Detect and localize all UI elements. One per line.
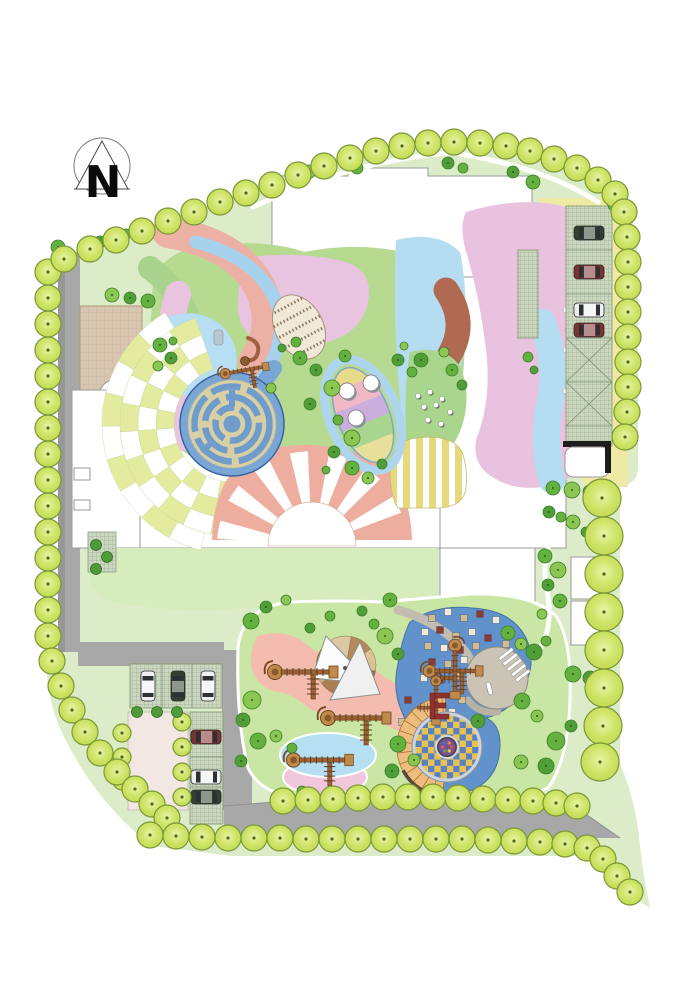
pavilion [563, 441, 611, 477]
tree-center-dot [70, 708, 73, 711]
shrub-dot [397, 359, 399, 361]
checker-square [422, 753, 428, 759]
car-rear-window [203, 693, 214, 697]
car-roof [172, 681, 184, 692]
tree-center-dot [600, 496, 603, 499]
checker-square [460, 766, 466, 772]
car-windshield [579, 305, 584, 316]
tree-center-dot [575, 804, 578, 807]
checker-square [466, 753, 472, 759]
pavilion-wall-top [563, 441, 611, 447]
tree-center-dot [552, 157, 555, 160]
shrub-tree [400, 342, 408, 350]
shrub-dot [240, 760, 242, 762]
tree-center-dot [192, 210, 195, 213]
shrub-dot [570, 725, 572, 727]
play-square [461, 657, 468, 664]
checker-square [428, 741, 434, 747]
shrub-tree [537, 609, 547, 619]
small-tree [132, 707, 143, 718]
garden-bench [214, 330, 223, 345]
checker-square [434, 728, 440, 734]
shrub-dot [545, 765, 547, 767]
checker-square [447, 766, 453, 772]
ladder-rail [299, 758, 348, 762]
checker-square [422, 747, 428, 753]
checker-square [416, 741, 422, 747]
checker-square [460, 741, 466, 747]
tree-center-dot [46, 608, 49, 611]
checker-square [422, 741, 428, 747]
shrub-tree [407, 367, 417, 377]
tree-center-dot [613, 192, 616, 195]
checker-square [441, 760, 447, 766]
shrub-tree [377, 459, 387, 469]
shrub-dot [275, 735, 277, 737]
shrub-dot [397, 653, 399, 655]
shrub-dot [250, 620, 252, 622]
shrub-dot [557, 569, 559, 571]
site-plan-page: N [0, 0, 699, 989]
checker-square [460, 734, 466, 740]
tree-center-dot [602, 686, 605, 689]
shrub-dot [351, 437, 353, 439]
tree-center-dot [601, 857, 604, 860]
shrub-dot [420, 359, 422, 361]
slide-platform [432, 719, 440, 725]
play-square [503, 641, 510, 648]
checker-cell [120, 403, 140, 432]
tree-center-dot [46, 478, 49, 481]
target-dot [443, 741, 446, 744]
shrub-dot [315, 369, 317, 371]
shrub-dot [552, 487, 554, 489]
tree-center-dot [598, 760, 601, 763]
car-windshield [143, 676, 154, 681]
target-dot [448, 749, 451, 752]
target-dot [448, 741, 451, 744]
shrub-dot [447, 162, 449, 164]
tree-center-dot [452, 140, 455, 143]
ladder-rail [453, 651, 457, 695]
checker-square [466, 734, 472, 740]
car [574, 226, 604, 240]
tree-center-dot [120, 731, 123, 734]
car-roof [584, 324, 595, 336]
tree-center-dot [506, 798, 509, 801]
tree-center-dot [115, 770, 118, 773]
maze-center [224, 416, 241, 433]
shrub-tree [266, 383, 276, 393]
pale-blue-east-band [542, 322, 553, 480]
snake-head [241, 357, 250, 366]
tree-center-dot [626, 260, 629, 263]
tree-center-dot [623, 435, 626, 438]
tree-center-dot [322, 164, 325, 167]
tree-center-dot [531, 799, 534, 802]
shrub-dot [547, 584, 549, 586]
shrub-tree [369, 619, 379, 629]
tree-center-dot [244, 191, 247, 194]
tree-center-dot [59, 684, 62, 687]
slide-platform [382, 712, 391, 724]
checker-square [447, 722, 453, 728]
shrub-dot [559, 600, 561, 602]
car [574, 303, 604, 317]
pavilion-canopy [565, 447, 609, 477]
tree-center-dot [602, 534, 605, 537]
tree-center-dot [88, 247, 91, 250]
shrub-dot [351, 467, 353, 469]
tree-center-dot [575, 166, 578, 169]
tree-center-dot [625, 235, 628, 238]
shrub-dot [333, 451, 335, 453]
play-square [422, 629, 429, 636]
checker-cell [102, 393, 123, 427]
tree-center-dot [628, 890, 631, 893]
tree-center-dot [46, 270, 49, 273]
shrub-dot [265, 606, 267, 608]
tree-center-dot [563, 842, 566, 845]
shrub-dot [257, 740, 259, 742]
shrub-tree [556, 512, 566, 522]
shrub-dot [555, 740, 557, 742]
shrub-dot [331, 387, 333, 389]
tree-center-dot [46, 452, 49, 455]
play-square [425, 643, 432, 650]
shrub-tree [322, 466, 330, 474]
checker-square [441, 728, 447, 734]
play-square [473, 643, 480, 650]
car [574, 323, 604, 337]
shrub-dot [451, 369, 453, 371]
stepping-stone [425, 417, 430, 422]
tree-center-dot [626, 285, 629, 288]
car-roof [201, 791, 212, 803]
shrub-dot [147, 300, 149, 302]
tree-center-dot [406, 795, 409, 798]
shrub-dot [520, 643, 522, 645]
tree-center-dot [478, 141, 481, 144]
tree-center-dot [46, 530, 49, 533]
tree-center-dot [278, 836, 281, 839]
tree-center-dot [348, 156, 351, 159]
shrub-dot [111, 294, 113, 296]
tree-center-dot [512, 839, 515, 842]
shrub-dot [536, 715, 538, 717]
checker-square [428, 766, 434, 772]
tree-center-dot [166, 219, 169, 222]
checker-square [434, 766, 440, 772]
tree-center-dot [356, 837, 359, 840]
stepping-stone [438, 421, 443, 426]
small-tree [91, 540, 102, 551]
small-tree [172, 707, 183, 718]
tree-center-dot [602, 572, 605, 575]
tree-center-dot [602, 648, 605, 651]
tree-center-dot [381, 795, 384, 798]
small-tree [152, 707, 163, 718]
platform-hub [427, 668, 433, 674]
tree-center-dot [382, 837, 385, 840]
play-square [441, 645, 448, 652]
white-seat [348, 410, 364, 426]
car-windshield [196, 732, 201, 743]
entry-steps-2 [74, 500, 90, 510]
checker-square [466, 747, 472, 753]
car-roof [584, 266, 595, 278]
shrub-tree [281, 595, 291, 605]
shrub-tree [523, 352, 533, 362]
checker-square [441, 766, 447, 772]
tree-center-dot [596, 178, 599, 181]
tree-center-dot [180, 745, 183, 748]
tree-center-dot [180, 720, 183, 723]
checker-square [447, 772, 453, 778]
checker-square [472, 747, 478, 753]
car-roof [201, 731, 212, 743]
checker-square [466, 741, 472, 747]
tree-center-dot [114, 238, 117, 241]
shrub-dot [391, 770, 393, 772]
platform-hub [434, 679, 439, 684]
tree-center-dot [133, 787, 136, 790]
platform-hub [290, 757, 297, 764]
shrub-tree [357, 606, 367, 616]
tree-center-dot [46, 400, 49, 403]
checker-square [472, 741, 478, 747]
tree-center-dot [140, 229, 143, 232]
car-roof [584, 227, 595, 239]
tree-center-dot [174, 834, 177, 837]
tree-center-dot [554, 801, 557, 804]
tree-center-dot [180, 770, 183, 773]
shrub-tree [541, 636, 551, 646]
checker-square [428, 734, 434, 740]
slide-platform [475, 666, 483, 676]
platform-hub [452, 643, 458, 649]
tree-center-dot [165, 816, 168, 819]
play-square [461, 615, 468, 622]
play-square [477, 611, 484, 618]
tree-center-dot [46, 374, 49, 377]
car-windshield [196, 772, 201, 783]
shrub-tree [278, 344, 286, 352]
entry-steps-1 [74, 468, 90, 480]
stepping-stone [439, 396, 444, 401]
checker-square [460, 753, 466, 759]
pavilion-wall-side [605, 447, 611, 473]
tree-center-dot [252, 836, 255, 839]
tree-center-dot [46, 322, 49, 325]
checker-square [428, 753, 434, 759]
car-windshield [579, 267, 584, 278]
car-rear-window [596, 305, 600, 316]
shrub-dot [521, 700, 523, 702]
checker-square [422, 760, 428, 766]
car-windshield [579, 228, 584, 239]
shrub-dot [571, 489, 573, 491]
car-windshield [173, 676, 184, 681]
tree-center-dot [226, 836, 229, 839]
shrub-dot [413, 759, 415, 761]
shrub-dot [572, 521, 574, 523]
car [191, 770, 221, 784]
car-windshield [196, 792, 201, 803]
tree-center-dot [180, 795, 183, 798]
car [201, 671, 215, 701]
tree-center-dot [626, 335, 629, 338]
checker-square [447, 760, 453, 766]
tree-center-dot [481, 797, 484, 800]
small-tree [91, 564, 102, 575]
trellis-strip [518, 250, 538, 338]
tree-center-dot [330, 837, 333, 840]
tree-center-dot [374, 149, 377, 152]
platform-hub [272, 669, 279, 676]
tree-center-dot [62, 257, 65, 260]
play-square [429, 615, 436, 622]
shrub-tree [333, 415, 343, 425]
checker-square [460, 722, 466, 728]
ladder-rail [281, 670, 333, 674]
car-rear-window [596, 267, 600, 278]
car-rear-window [143, 693, 154, 697]
slide-platform [329, 666, 338, 678]
slide-platform [345, 754, 354, 765]
shrub-tree [153, 361, 163, 371]
tree-center-dot [46, 634, 49, 637]
shrub-tree [291, 337, 301, 347]
car-roof [142, 681, 154, 692]
shrub-dot [548, 511, 550, 513]
car-rear-window [596, 228, 600, 239]
car-windshield [579, 325, 584, 336]
tree-center-dot [304, 837, 307, 840]
car-roof [584, 304, 595, 316]
stepping-stone [433, 402, 438, 407]
shrub-dot [299, 357, 301, 359]
shrub-dot [477, 720, 479, 722]
tree-center-dot [486, 838, 489, 841]
car [141, 671, 155, 701]
tree-center-dot [46, 296, 49, 299]
checker-square [453, 722, 459, 728]
parking-access-road [78, 642, 224, 666]
shrub-dot [309, 403, 311, 405]
tree-center-dot [538, 840, 541, 843]
white-seat [339, 383, 355, 399]
car [171, 671, 185, 701]
shrub-dot [251, 699, 253, 701]
tree-center-dot [626, 385, 629, 388]
shrub-tree [325, 611, 335, 621]
tree-center-dot [426, 141, 429, 144]
tree-center-dot [46, 504, 49, 507]
checker-square [434, 760, 440, 766]
car-windshield [203, 676, 214, 681]
car-roof [201, 771, 212, 783]
shrub-dot [389, 599, 391, 601]
tree-center-dot [408, 837, 411, 840]
tree-center-dot [270, 183, 273, 186]
tree-center-dot [356, 796, 359, 799]
shrub-dot [159, 344, 161, 346]
shrub-tree [439, 347, 449, 357]
shrub-tree [458, 163, 468, 173]
tree-center-dot [296, 173, 299, 176]
shrub-dot [544, 555, 546, 557]
tree-center-dot [601, 724, 604, 727]
checker-square [441, 722, 447, 728]
car-rear-window [596, 325, 600, 336]
tree-center-dot [456, 796, 459, 799]
tree-center-dot [50, 659, 53, 662]
checker-square [466, 760, 472, 766]
platform-hub [325, 715, 332, 722]
car [191, 730, 221, 744]
tree-center-dot [148, 833, 151, 836]
car [574, 265, 604, 279]
target-dot [443, 749, 446, 752]
tree-center-dot [46, 426, 49, 429]
checker-square [460, 747, 466, 753]
play-square [445, 609, 452, 616]
shrub-tree [169, 337, 177, 345]
sail-pole [343, 666, 347, 670]
shrub-tree [457, 380, 467, 390]
stepping-stone [447, 409, 452, 414]
car-rear-window [213, 792, 217, 803]
ladder-rail [334, 716, 386, 720]
tree-center-dot [622, 210, 625, 213]
checker-square [441, 772, 447, 778]
stepping-stone [421, 404, 426, 409]
tree-center-dot [504, 144, 507, 147]
checker-square [453, 760, 459, 766]
shrub-dot [532, 181, 534, 183]
shrub-dot [520, 761, 522, 763]
stepping-stone [415, 393, 420, 398]
tree-center-dot [306, 798, 309, 801]
shrub-dot [397, 743, 399, 745]
checker-square [460, 760, 466, 766]
play-square [469, 629, 476, 636]
tree-center-dot [626, 360, 629, 363]
stepping-stone [427, 389, 432, 394]
compass-label: N [85, 157, 122, 208]
shrub-tree [530, 366, 538, 374]
landscape-site-plan: N [0, 0, 699, 989]
checker-square [428, 760, 434, 766]
shrub-dot [533, 651, 535, 653]
target-dot [441, 745, 444, 748]
tree-center-dot [46, 348, 49, 351]
checker-square [428, 747, 434, 753]
checker-square [422, 734, 428, 740]
small-tree [102, 552, 113, 563]
shrub-dot [507, 632, 509, 634]
car [191, 790, 221, 804]
tree-center-dot [615, 874, 618, 877]
tree-center-dot [431, 795, 434, 798]
tree-center-dot [46, 556, 49, 559]
checker-square [422, 728, 428, 734]
shrub-dot [242, 719, 244, 721]
tree-center-dot [434, 837, 437, 840]
tree-center-dot [626, 310, 629, 313]
play-square [437, 627, 444, 634]
